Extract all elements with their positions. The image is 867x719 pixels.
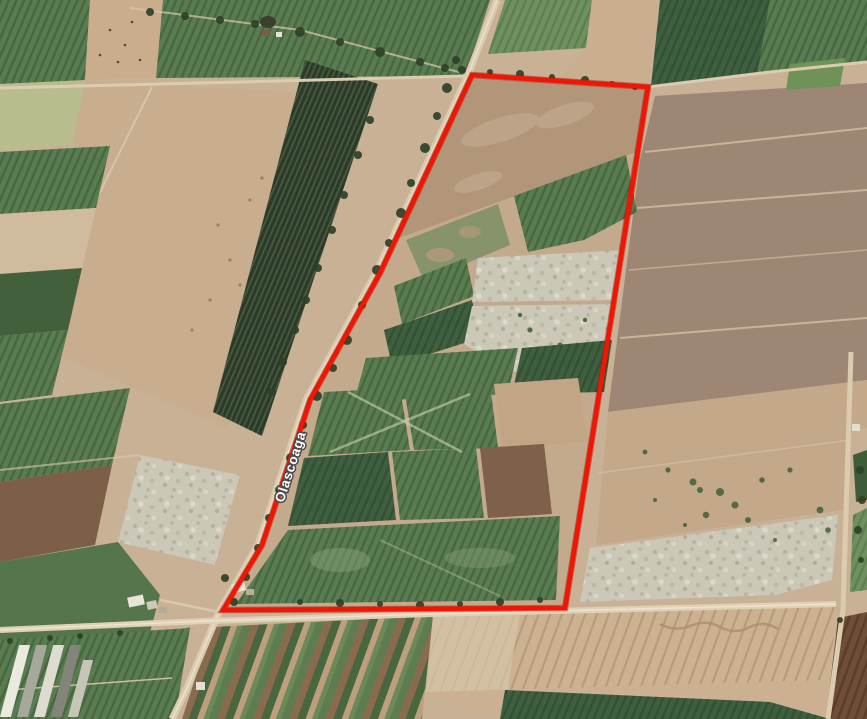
field-patchwork-southwest — [0, 628, 190, 719]
satellite-canvas: Olascoaga — [0, 0, 867, 719]
satellite-map-view: Olascoaga — [0, 0, 867, 719]
